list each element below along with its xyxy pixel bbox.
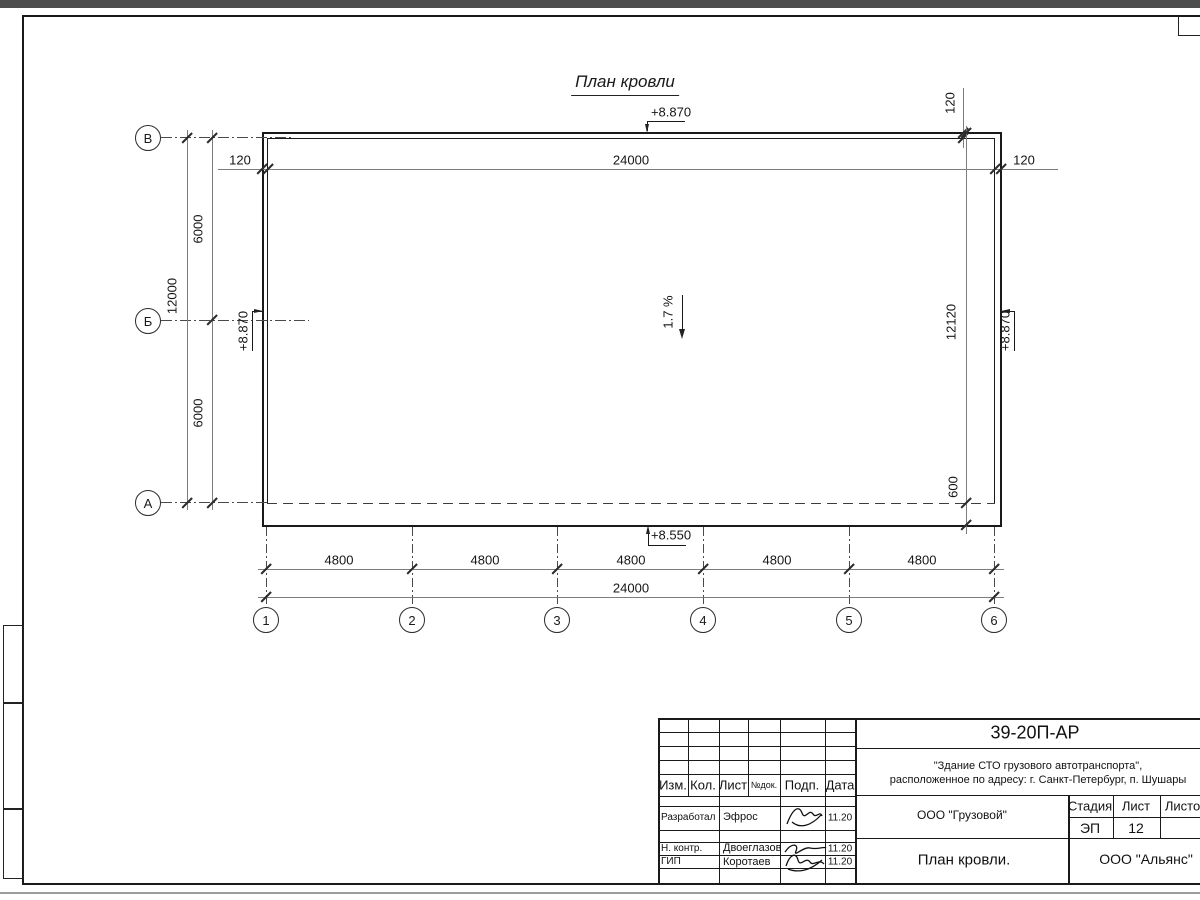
elev-top-leader-h [647,121,685,122]
axis-circle-5: 5 [836,607,862,633]
roof-right-inner [994,138,995,503]
tb-line [688,718,689,796]
dim-bay-4: 4800 [763,553,792,568]
project-line1: "Здание СТО грузового автотранспорта", [934,760,1143,772]
row-name: Эфрос [723,811,758,823]
drawing-sheet: План кровли 120 24000 120 120 12000 6000… [0,0,1200,900]
sheet-value: 12 [1128,820,1144,836]
axis-label: 1 [262,613,269,628]
sheets-label: Листов [1165,799,1200,814]
dim-left-total: 12000 [165,278,180,314]
slope-label: 1.7 % [661,295,676,328]
signature [784,800,824,832]
margin-box-1 [3,625,24,704]
axis-label: 5 [845,613,852,628]
axis-label: 4 [699,613,706,628]
dim-parapet-right: 120 [1013,153,1035,168]
row-date: 11.20 [828,813,852,824]
axis-label: 3 [553,613,560,628]
margin-box-3 [3,808,24,879]
frame-bottom [22,883,1200,885]
axis-line-v [161,137,293,138]
row-role: ГИП [661,856,681,867]
col-data: Дата [826,778,855,793]
project-line2: расположенное по адресу: г. Санкт-Петерб… [890,774,1186,786]
elev-left: +8.870 [236,311,251,351]
roof-top-inner [267,138,995,139]
dim-bay-1: 4800 [325,553,354,568]
arrow-right-icon [254,309,263,313]
sheet-top-edge [0,0,1200,8]
tb-line [1160,795,1161,838]
axis-circle-row-b: Б [135,308,161,334]
slope-arrow-head-icon [679,329,685,339]
elev-left-leader-v [252,311,253,351]
signature [782,838,828,874]
titleblock-divider [855,718,857,883]
col-ndok: №док. [751,780,777,790]
arrow-up-icon [646,525,650,534]
tb-line [1068,817,1200,818]
arrow-down-icon [645,124,649,133]
axis-a-wall-dashed [267,503,995,504]
axis-label: В [144,131,153,146]
dim-bay-2: 4800 [471,553,500,568]
axis-circle-1: 1 [253,607,279,633]
axis-circle-row-a: А [135,490,161,516]
elev-bottom: +8.550 [651,528,691,543]
frame-top [22,15,1200,17]
company: ООО "Альянс" [1099,851,1193,867]
dim-top-total: 24000 [613,153,649,168]
dim-line-top [218,169,1058,170]
dim-line-right [966,126,967,534]
dim-right-total: 12120 [944,304,959,340]
sheet-bottom-edge [0,892,1200,894]
row-role: Н. контр. [661,843,702,854]
tb-line [855,748,1200,749]
tb-line [855,838,1200,839]
tb-line [1113,795,1114,838]
elev-right-leader-v [1014,311,1015,351]
col-list: Лист [719,778,747,793]
row-name: Коротаев [723,856,771,868]
col-izm: Изм. [659,778,687,793]
slope-arrow-line [682,295,683,331]
dim-line-bottom-total [258,597,1004,598]
axis-circle-6: 6 [981,607,1007,633]
titleblock-left [658,718,660,883]
sheet-label: Лист [1122,799,1150,814]
dim-bay-3: 4800 [617,553,646,568]
client: ООО "Грузовой" [917,808,1007,822]
titleblock-top [658,718,1200,720]
dim-line-left-total [187,130,188,510]
roof-left-outer [262,132,264,526]
row-date: 11.20 [828,844,852,855]
dim-parapet-top: 120 [943,92,958,114]
stage-label: Стадия [1068,799,1112,814]
axis-label: 6 [990,613,997,628]
dim-left-lower: 6000 [191,399,206,428]
elev-right: +8.870 [998,311,1013,351]
col-kol: Кол. [690,778,716,793]
row-role: Разработал [661,812,715,823]
doc-number: 39-20П-АР [991,723,1080,744]
col-podp: Подп. [785,778,820,793]
elev-bottom-leader-h [648,545,686,546]
axis-circle-2: 2 [399,607,425,633]
dim-parapet-left: 120 [229,153,251,168]
dim-line-bottom-bays [258,569,1004,570]
elev-top: +8.870 [651,105,691,120]
roof-bottom-eaves [262,525,1002,527]
axis-circle-3: 3 [544,607,570,633]
roof-top-outer [262,132,1002,134]
tb-line [719,718,720,883]
tb-line [748,718,749,796]
dim-bottom-total: 24000 [613,581,649,596]
row-date: 11.20 [828,857,852,868]
stage-value: ЭП [1080,820,1100,836]
dim-bay-5: 4800 [908,553,937,568]
tb-line [780,718,781,883]
axis-circle-row-v: В [135,125,161,151]
drawing-title: План кровли [571,72,679,96]
dim-right-overhang: 600 [946,476,961,498]
axis-label: А [144,496,153,511]
sheet-title: План кровли. [918,852,1011,869]
row-name: Двоеглазов [723,842,781,854]
axis-label: Б [144,314,153,329]
margin-box-2 [3,702,24,810]
axis-label: 2 [408,613,415,628]
corner-box [1178,16,1200,36]
axis-circle-4: 4 [690,607,716,633]
axis-line-a [161,502,268,503]
dim-left-upper: 6000 [191,215,206,244]
dim-line-parapet-top [963,88,964,148]
tb-line [855,795,1200,796]
